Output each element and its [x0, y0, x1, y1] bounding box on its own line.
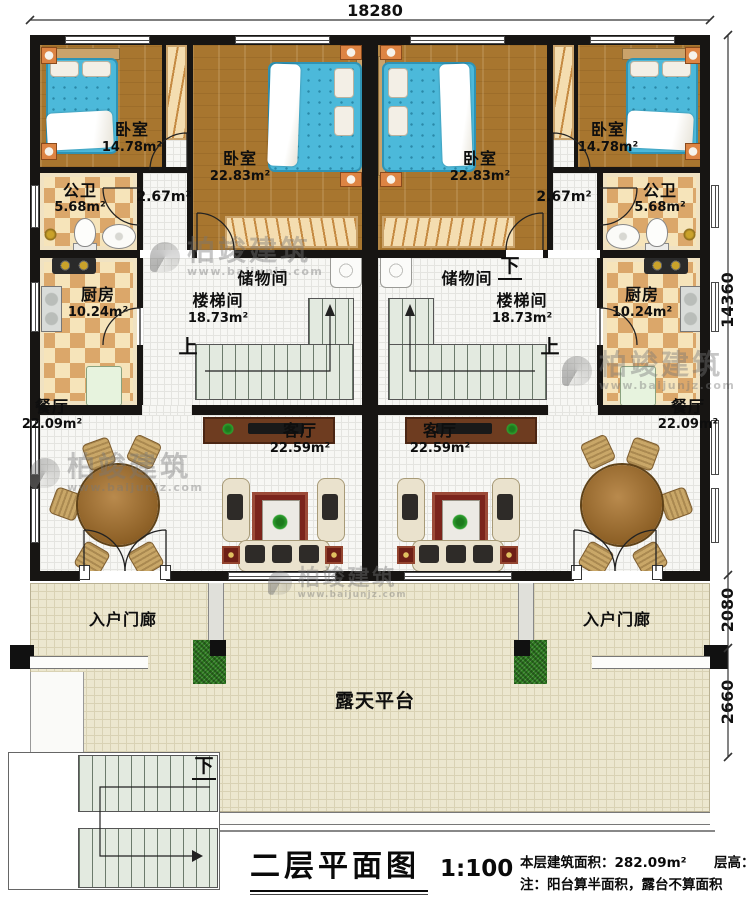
- room-area-bedroom-small-left: 14.78m²: [96, 141, 168, 154]
- room-label-living-right: 客厅: [408, 423, 472, 439]
- room-label-storage-right: 储物间: [427, 271, 507, 287]
- pillow: [388, 106, 408, 136]
- room-label-bedroom-small-left: 卧室: [100, 122, 164, 138]
- window: [404, 572, 512, 580]
- cushion: [227, 494, 243, 520]
- wall-int: [40, 167, 192, 173]
- room-area-bedroom-large-right: 22.83m²: [444, 170, 516, 183]
- plant-table-right: [452, 514, 468, 530]
- room-label-living-left: 客厅: [268, 423, 332, 439]
- shower-drain-left: [44, 228, 57, 241]
- room-area-living-right: 22.59m²: [402, 442, 478, 455]
- floor-plan-canvas: 柏竣建筑 www.baijunjz.com 柏竣建筑 www.baijunjz.…: [0, 0, 750, 902]
- room-label-kitchen-right: 厨房: [602, 287, 682, 303]
- wall-int: [192, 405, 362, 415]
- room-area-living-left: 22.59m²: [262, 442, 338, 455]
- floor-landing-right: [553, 173, 597, 250]
- room-label-bathroom-right: 公卫: [628, 183, 692, 199]
- door-opening-entry-left: [80, 571, 166, 581]
- cushion: [299, 545, 319, 563]
- room-label-bedroom-large-left: 卧室: [208, 151, 272, 167]
- bed-sheet: [267, 64, 301, 167]
- stair-up-mark-right: 上: [538, 338, 562, 357]
- room-area-dining-right: 22.09m²: [650, 418, 726, 431]
- room-label-bedroom-large-right: 卧室: [448, 151, 512, 167]
- window: [31, 488, 39, 543]
- wall-int: [192, 250, 197, 258]
- title-underline: [250, 890, 428, 895]
- window: [65, 36, 150, 44]
- wall-int: [547, 45, 553, 250]
- stair-upper-right: [388, 298, 434, 346]
- plant-table-left: [272, 514, 288, 530]
- wall-int: [378, 250, 506, 258]
- shower-drain-right: [683, 228, 696, 241]
- room-label-stairwell-right: 楼梯间: [482, 293, 562, 309]
- wardrobe-right: [382, 216, 515, 248]
- nightstand: [685, 47, 701, 64]
- stair-lower-right: [388, 344, 547, 400]
- wall-int: [40, 250, 140, 258]
- cushion: [402, 494, 418, 520]
- porch-beam-right: [518, 583, 534, 643]
- window: [590, 36, 675, 44]
- room-area-bathroom-right: 5.68m²: [624, 201, 696, 214]
- cushion: [272, 545, 292, 563]
- wall-party: [362, 45, 378, 571]
- plant-tv-left: [222, 423, 234, 435]
- room-label-stairwell-left: 楼梯间: [178, 293, 258, 309]
- window: [711, 185, 719, 228]
- window: [31, 282, 39, 332]
- side-table: [222, 546, 240, 564]
- side-table: [397, 546, 415, 564]
- area-label: 本层建筑面积：: [520, 855, 615, 871]
- room-area-bathroom-left: 5.68m²: [44, 201, 116, 214]
- nightstand: [685, 143, 701, 160]
- washer-right: [380, 253, 412, 288]
- cushion: [419, 545, 439, 563]
- cushion: [497, 494, 513, 520]
- room-label-porch-left: 入户门廊: [55, 612, 191, 628]
- wall-int: [378, 405, 548, 415]
- dimension-top: 18280: [330, 3, 420, 19]
- washer-left: [330, 253, 362, 288]
- window: [711, 488, 719, 543]
- dining-table-right: [582, 465, 662, 545]
- closet-left: [166, 45, 187, 140]
- sink-left: [102, 224, 136, 249]
- nightstand: [340, 172, 362, 187]
- room-label-bathroom-left: 公卫: [48, 183, 112, 199]
- porch-step-left: [30, 656, 148, 669]
- wardrobe-left: [225, 216, 358, 248]
- wall-int: [597, 173, 603, 250]
- floor-landing-left: [143, 173, 187, 250]
- door-jamb: [571, 565, 582, 580]
- fridge-left: [86, 366, 122, 406]
- window: [235, 36, 330, 44]
- nightstand: [41, 143, 57, 160]
- cushion: [245, 545, 265, 563]
- nightstand: [340, 45, 362, 60]
- area-value: 282.09m²: [615, 855, 687, 871]
- floor-closet-pass-right: [553, 140, 574, 167]
- room-area-bedroom-large-left: 22.83m²: [204, 170, 276, 183]
- porch-step-right: [592, 656, 710, 669]
- plan-title: 二层平面图: [250, 852, 420, 882]
- fridge-right: [620, 366, 656, 406]
- stair-down-mark-center: 下: [498, 257, 522, 280]
- room-area-kitchen-right: 10.24m²: [596, 306, 688, 319]
- pillow: [334, 106, 354, 136]
- pillow: [334, 68, 354, 98]
- door-opening-entry-right: [574, 571, 660, 581]
- height-label: 层高：: [714, 855, 750, 871]
- nightstand: [380, 45, 402, 60]
- dimension-side-porch: 2080: [720, 582, 736, 638]
- porch-beam-left: [208, 583, 224, 643]
- floor-passage-right: [548, 405, 598, 415]
- nightstand: [41, 47, 57, 64]
- area-landing-right: 2.67m²: [528, 190, 600, 204]
- wall-int: [597, 345, 603, 405]
- room-label-storage-left: 储物间: [223, 271, 303, 287]
- dining-table-left: [78, 465, 158, 545]
- door-jamb: [652, 565, 663, 580]
- window: [31, 185, 39, 228]
- nightstand: [380, 172, 402, 187]
- plan-note: 注：阳台算半面积，露台不算面积: [520, 878, 723, 894]
- wall-int: [187, 45, 193, 250]
- floor-passage-left: [142, 405, 192, 415]
- window: [410, 36, 505, 44]
- door-jamb: [160, 565, 171, 580]
- stair-lower-left: [195, 344, 354, 400]
- stove-left: [52, 257, 96, 274]
- wall-int: [234, 250, 362, 258]
- room-area-stairwell-right: 18.73m²: [484, 312, 560, 325]
- dimension-side-terrace: 2660: [720, 674, 736, 730]
- door-jamb: [79, 565, 90, 580]
- room-label-dining-left: 餐厅: [20, 399, 84, 415]
- column-planter-right: [514, 640, 530, 656]
- cushion: [446, 545, 466, 563]
- sink-right: [606, 224, 640, 249]
- pillow: [388, 68, 408, 98]
- room-label-bedroom-small-right: 卧室: [576, 122, 640, 138]
- room-area-bedroom-small-right: 14.78m²: [572, 141, 644, 154]
- side-table: [500, 546, 518, 564]
- room-label-dining-right: 餐厅: [656, 399, 720, 415]
- wall-int: [600, 250, 700, 258]
- dimension-side-main: 14360: [720, 272, 736, 328]
- wall-int: [137, 173, 143, 250]
- pillow: [82, 61, 111, 77]
- toilet-right: [646, 218, 668, 247]
- wall-outer-right: [700, 35, 710, 581]
- wall-int: [137, 345, 143, 405]
- wall-int: [543, 250, 548, 258]
- stair-upper-left: [308, 298, 354, 346]
- area-landing-left: 2.67m²: [128, 190, 200, 204]
- room-label-kitchen-left: 厨房: [58, 287, 138, 303]
- stove-right: [644, 257, 688, 274]
- room-label-terrace: 露天平台: [307, 692, 443, 711]
- plan-info-line1: 本层建筑面积：282.09m² 层高：3.6m: [520, 856, 750, 872]
- room-area-dining-left: 22.09m²: [14, 418, 90, 431]
- closet-right: [553, 45, 574, 140]
- column-planter-left: [210, 640, 226, 656]
- cushion: [473, 545, 493, 563]
- window: [228, 572, 336, 580]
- cushion: [322, 494, 338, 520]
- stair-up-mark-left: 上: [176, 338, 200, 357]
- plan-scale: 1:100: [440, 858, 513, 881]
- room-area-stairwell-left: 18.73m²: [180, 312, 256, 325]
- floor-closet-pass-left: [166, 140, 187, 167]
- side-table: [325, 546, 343, 564]
- room-label-porch-right: 入户门廊: [549, 612, 685, 628]
- wall-int: [548, 167, 700, 173]
- room-area-kitchen-left: 10.24m²: [52, 306, 144, 319]
- pillow: [630, 61, 659, 77]
- toilet-left: [74, 218, 96, 247]
- plant-tv-right: [506, 423, 518, 435]
- exterior-stair-flight-lower: [78, 828, 218, 888]
- stair-down-mark-terrace: 下: [192, 757, 216, 780]
